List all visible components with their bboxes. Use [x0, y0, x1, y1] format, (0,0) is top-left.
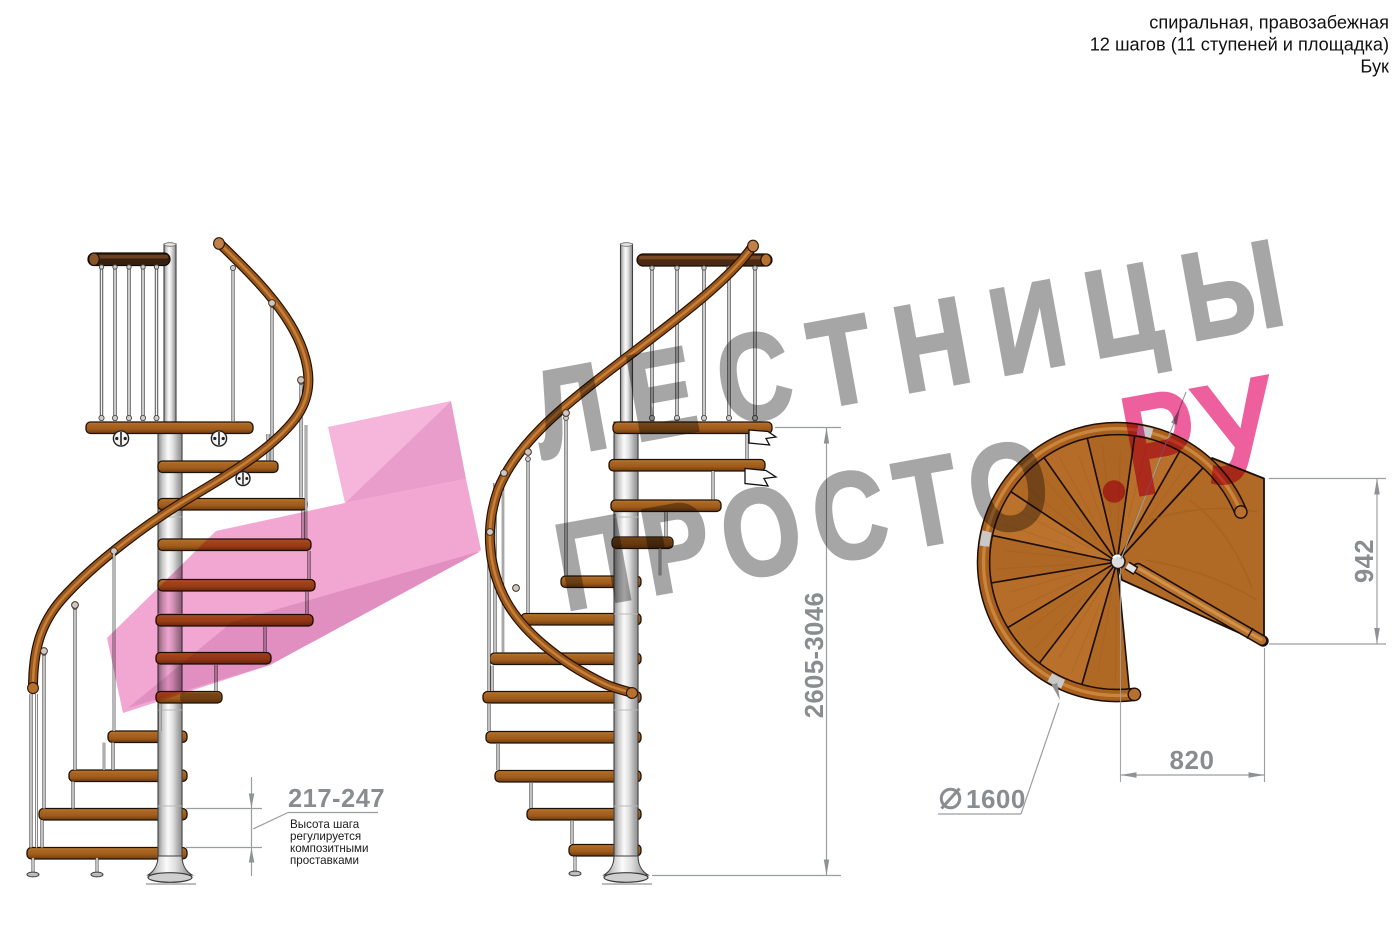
- svg-text:217-247: 217-247: [288, 785, 385, 813]
- svg-text:942: 942: [1351, 539, 1379, 583]
- svg-text:проставками: проставками: [290, 854, 359, 867]
- svg-text:Бук: Бук: [1360, 57, 1390, 77]
- svg-text:1600: 1600: [966, 784, 1026, 814]
- svg-text:спиральная, правозабежная: спиральная, правозабежная: [1149, 13, 1389, 33]
- svg-text:2605-3046: 2605-3046: [801, 592, 829, 718]
- svg-text:820: 820: [1170, 745, 1215, 775]
- svg-text:12 шагов (11 ступеней и площад: 12 шагов (11 ступеней и площадка): [1090, 35, 1389, 55]
